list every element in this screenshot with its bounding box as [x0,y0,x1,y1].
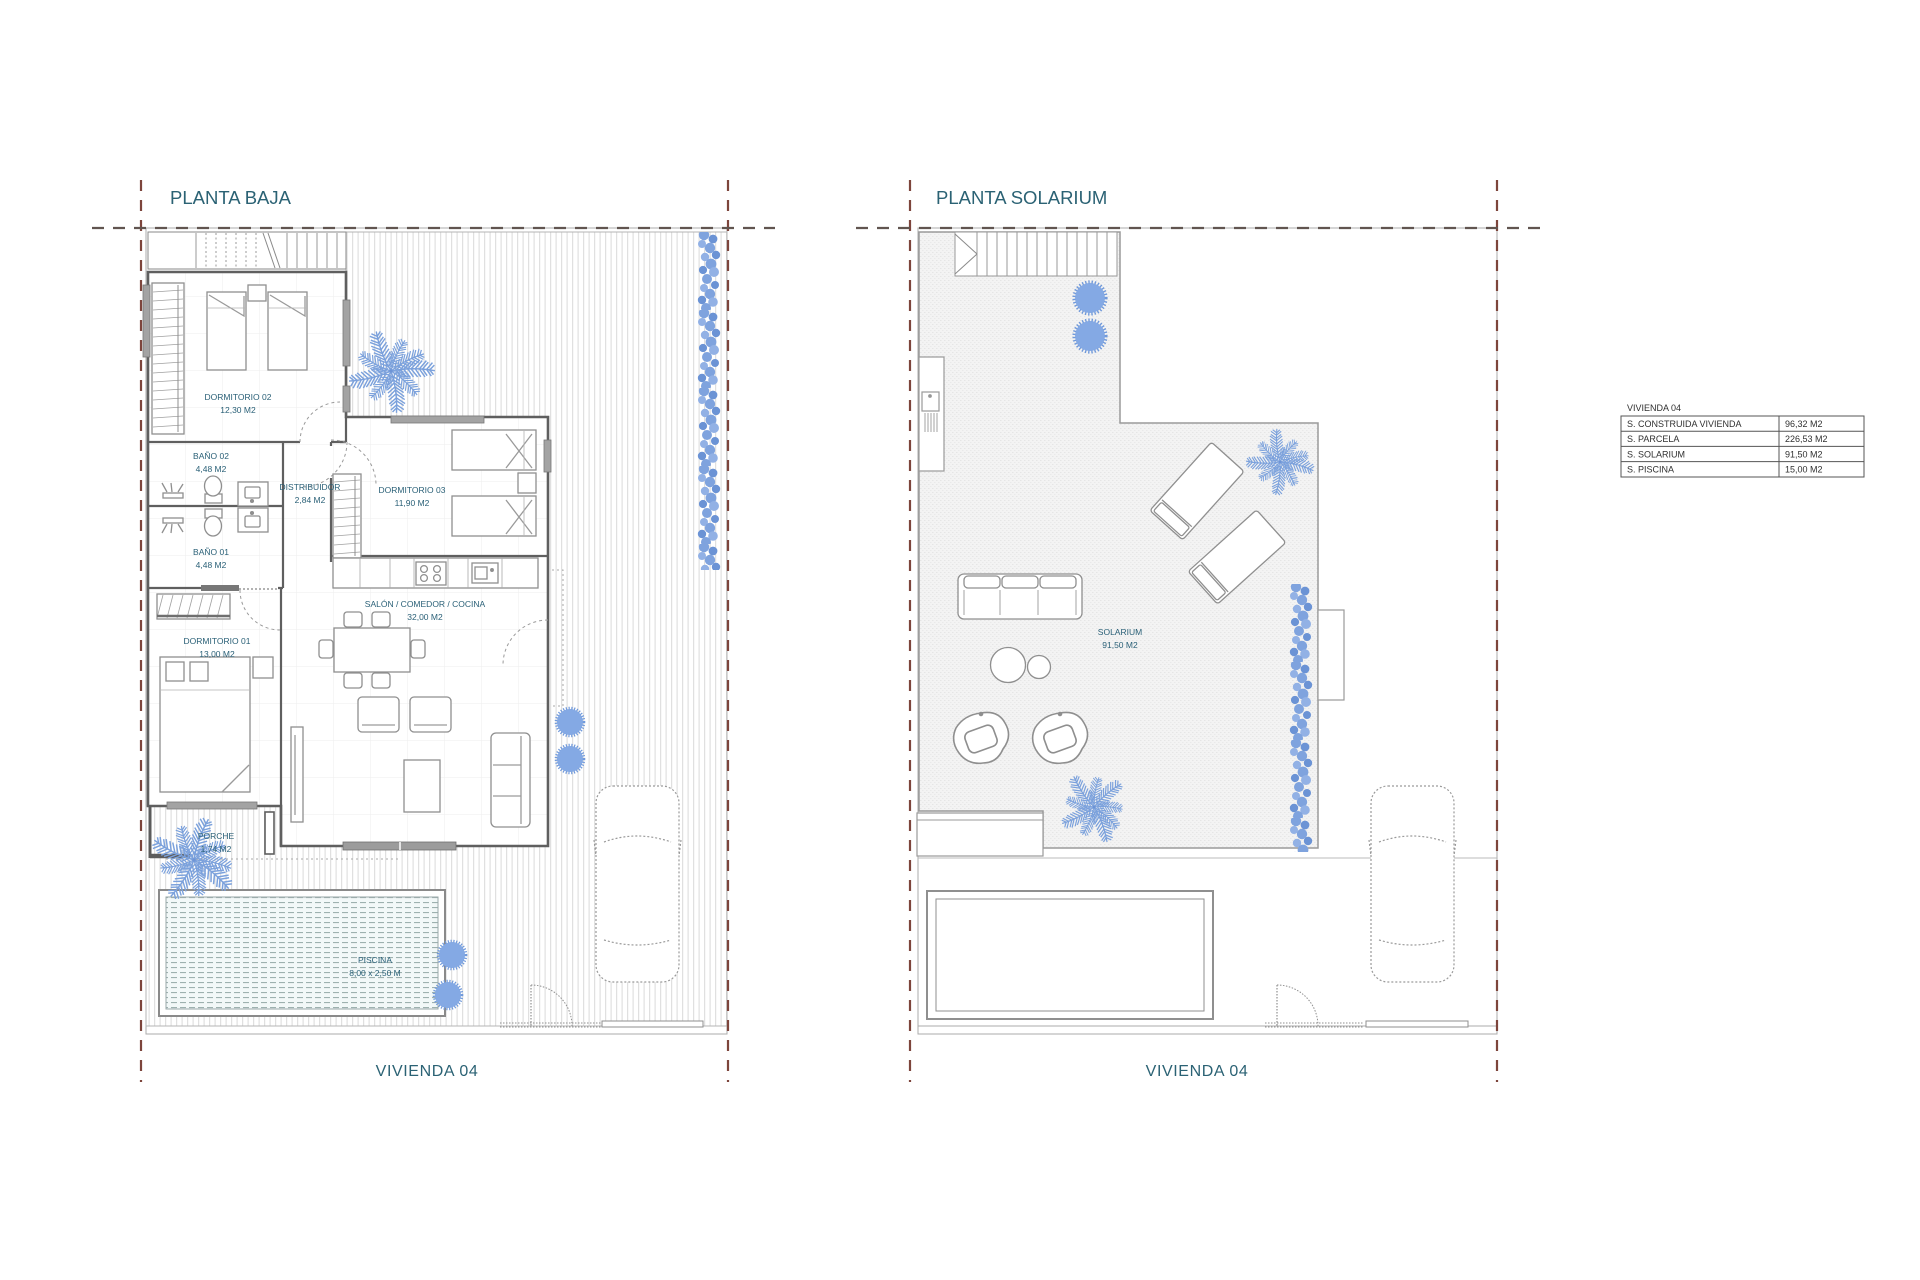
svg-text:13,00 M2: 13,00 M2 [199,649,235,659]
svg-text:VIVIENDA 04: VIVIENDA 04 [1627,403,1681,413]
svg-text:4,48 M2: 4,48 M2 [196,464,227,474]
svg-text:S. CONSTRUIDA VIVIENDA: S. CONSTRUIDA VIVIENDA [1627,419,1742,429]
svg-text:91,50 M2: 91,50 M2 [1785,449,1823,459]
svg-text:S. SOLARIUM: S. SOLARIUM [1627,449,1685,459]
svg-text:BAÑO 02: BAÑO 02 [193,451,229,461]
svg-text:PISCINA: PISCINA [358,955,392,965]
svg-text:S. PARCELA: S. PARCELA [1627,434,1679,444]
svg-text:DORMITORIO 03: DORMITORIO 03 [379,485,446,495]
svg-text:91,50 M2: 91,50 M2 [1102,640,1138,650]
svg-text:4,48 M2: 4,48 M2 [196,560,227,570]
svg-text:96,32 M2: 96,32 M2 [1785,419,1823,429]
svg-text:15,00 M2: 15,00 M2 [1785,465,1823,475]
svg-text:8,00 x 2,50 M: 8,00 x 2,50 M [349,968,401,978]
svg-text:226,53 M2: 226,53 M2 [1785,434,1828,444]
svg-text:BAÑO 01: BAÑO 01 [193,547,229,557]
svg-text:DORMITORIO 01: DORMITORIO 01 [184,636,251,646]
svg-text:32,00 M2: 32,00 M2 [407,612,443,622]
svg-text:1,74 M2: 1,74 M2 [201,844,232,854]
svg-text:VIVIENDA 04: VIVIENDA 04 [376,1063,479,1080]
svg-text:PLANTA SOLARIUM: PLANTA SOLARIUM [936,187,1107,208]
svg-text:DORMITORIO 02: DORMITORIO 02 [205,392,272,402]
svg-text:S. PISCINA: S. PISCINA [1627,465,1674,475]
svg-text:12,30 M2: 12,30 M2 [220,405,256,415]
svg-text:DISTRIBUIDOR: DISTRIBUIDOR [280,482,341,492]
svg-text:SALÓN / COMEDOR / COCINA: SALÓN / COMEDOR / COCINA [365,599,486,609]
svg-text:PLANTA BAJA: PLANTA BAJA [170,187,292,208]
svg-text:11,90 M2: 11,90 M2 [395,498,430,508]
svg-text:PORCHE: PORCHE [198,831,235,841]
svg-text:SOLARIUM: SOLARIUM [1098,627,1142,637]
svg-text:2,84 M2: 2,84 M2 [295,495,326,505]
svg-text:VIVIENDA 04: VIVIENDA 04 [1146,1063,1249,1080]
